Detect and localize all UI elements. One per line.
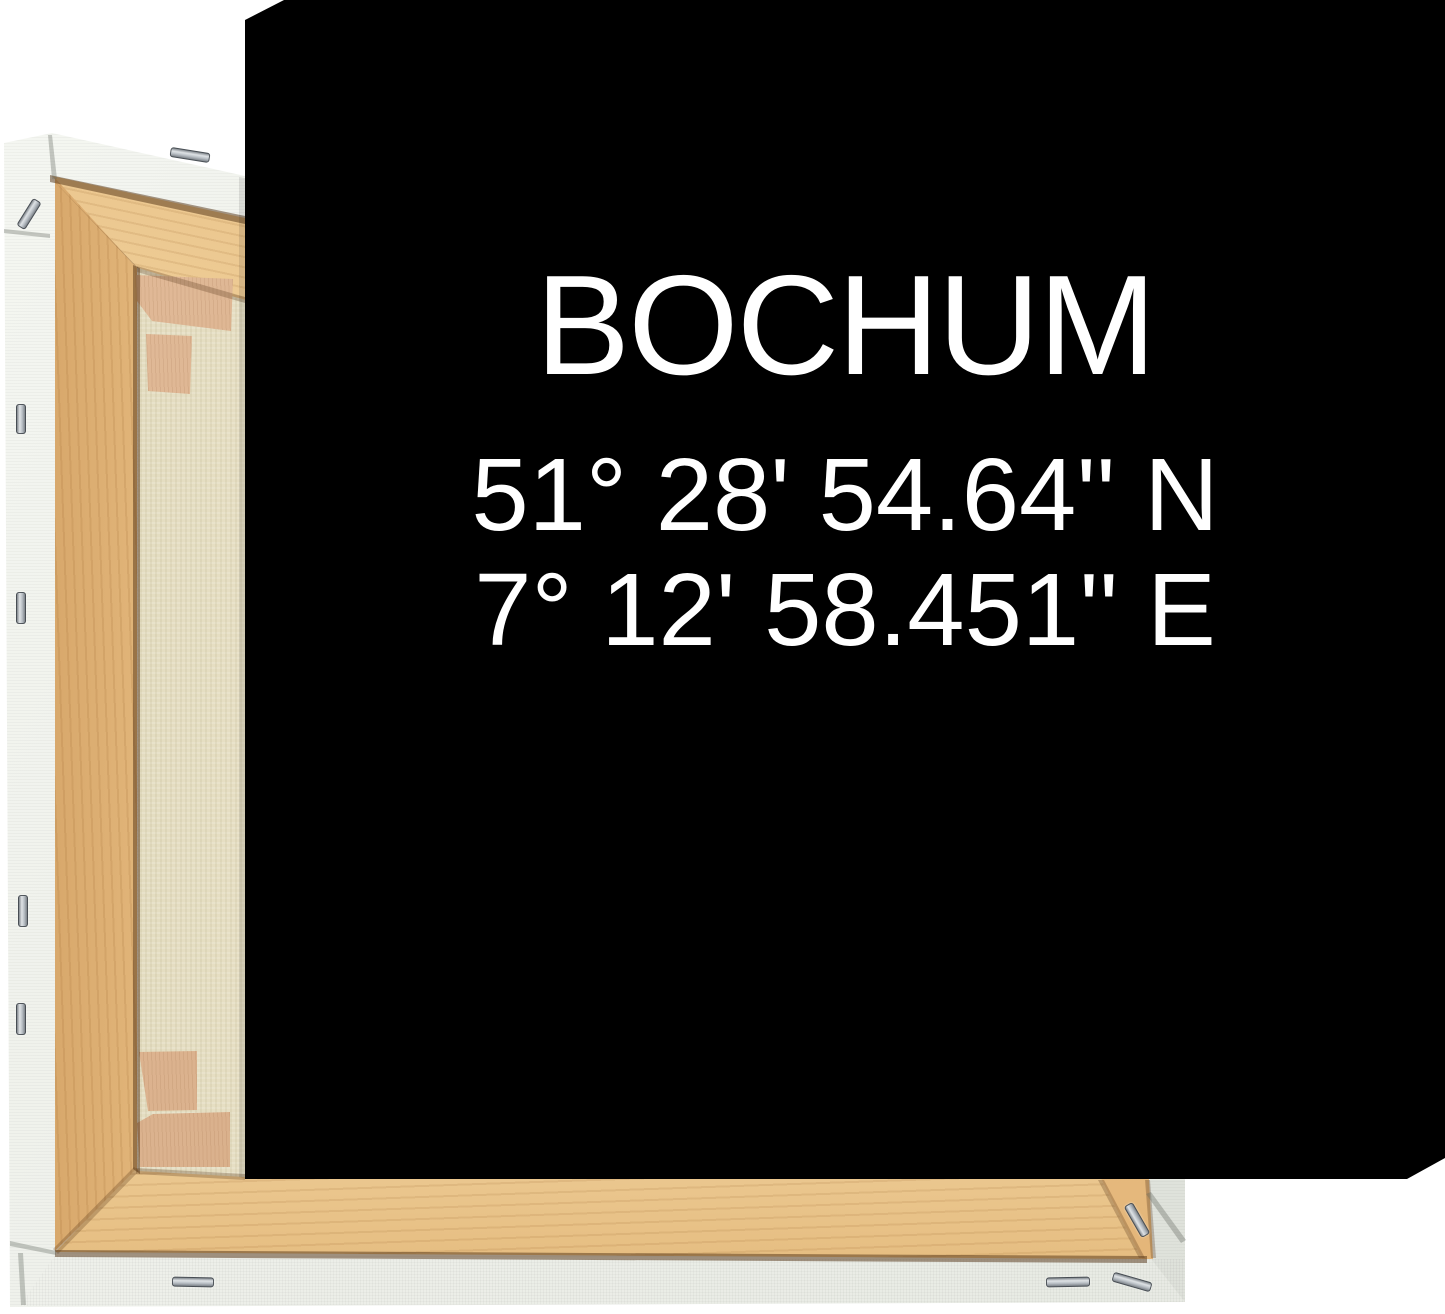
staple [1046, 1277, 1090, 1288]
staple [16, 592, 26, 624]
staple [172, 1277, 214, 1288]
city-title: BOCHUM [245, 255, 1445, 397]
canvas-print-product-photo: BOCHUM 51° 28' 54.64'' N 7° 12' 58.451''… [0, 0, 1445, 1314]
staple [18, 895, 28, 927]
staple [16, 1003, 26, 1035]
staple [16, 404, 26, 434]
longitude-line: 7° 12' 58.451'' E [245, 552, 1445, 667]
printed-design: BOCHUM 51° 28' 54.64'' N 7° 12' 58.451''… [245, 0, 1445, 1180]
latitude-line: 51° 28' 54.64'' N [245, 437, 1445, 552]
coordinates-block: 51° 28' 54.64'' N 7° 12' 58.451'' E [245, 437, 1445, 668]
